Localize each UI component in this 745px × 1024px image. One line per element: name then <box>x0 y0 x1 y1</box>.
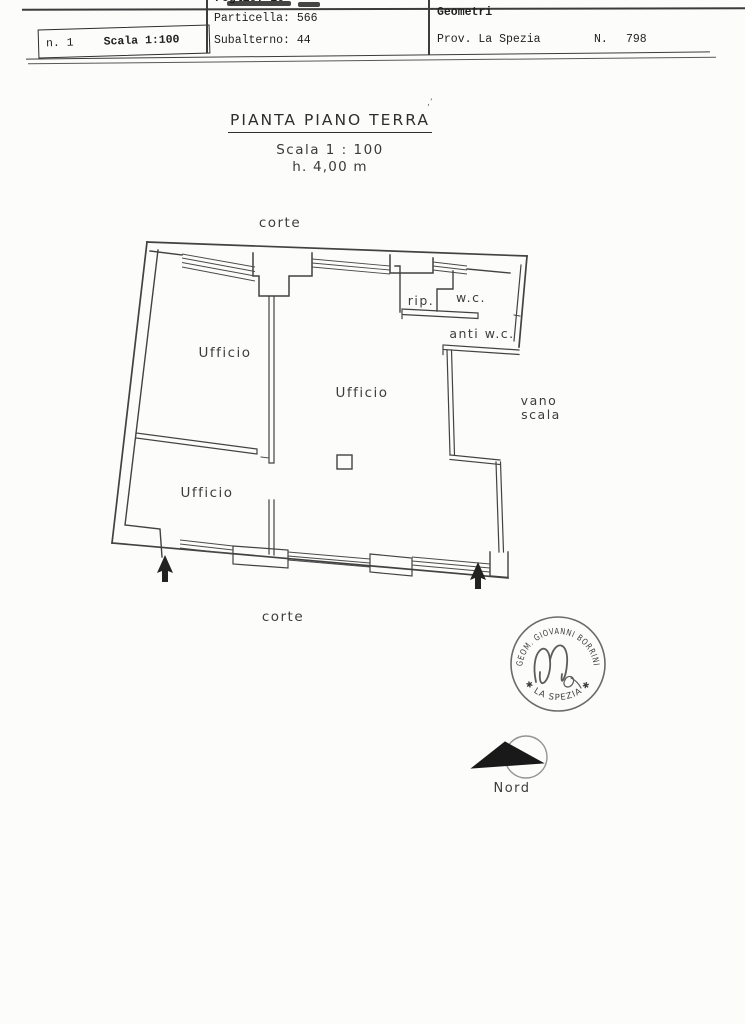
sheet-number: n. 1 <box>46 36 74 50</box>
scale-value: Scala 1:100 <box>103 33 179 48</box>
geometri-field: Geometri <box>437 6 492 19</box>
label-ufficio-bottom: Ufficio <box>180 485 233 501</box>
north-indicator: Nord <box>450 730 580 810</box>
surveyor-stamp: GEOM. GIOVANNI BORRINI ✱ LA SPEZIA ✱ <box>505 608 615 718</box>
label-vano-scala-line2: scala <box>521 407 560 422</box>
north-arrow-icon <box>472 742 543 768</box>
scan-speck: ‚’ <box>427 98 433 108</box>
floor-plan-drawing: corte Ufficio Ufficio Ufficio rip. w.c. … <box>95 205 560 640</box>
title-scale: Scala 1 : 100 <box>215 142 445 158</box>
page-title: PIANTA PIANO TERRA <box>228 111 432 133</box>
scan-smudge <box>227 1 291 6</box>
svg-text:✱ LA SPEZIA ✱: ✱ LA SPEZIA ✱ <box>523 679 594 703</box>
header-divider-right <box>428 0 430 55</box>
stamp-signature <box>534 645 581 688</box>
label-ufficio-center: Ufficio <box>335 385 388 401</box>
stamp-arc-bottom-text: ✱ LA SPEZIA ✱ <box>523 679 594 703</box>
scale-box: n. 1 Scala 1:100 <box>38 24 211 58</box>
registry-n-label: N. <box>594 33 608 46</box>
subalterno-field: Subalterno: 44 <box>214 34 311 47</box>
label-wc: w.c. <box>456 290 486 305</box>
scanned-document-page: n. 1 Scala 1:100 Foglio: 16 Particella: … <box>0 0 745 1024</box>
window-lines <box>180 254 490 572</box>
label-corte-top: corte <box>259 215 301 231</box>
label-rip: rip. <box>408 293 435 308</box>
albo-field: Iscritto all'Albo: <box>437 0 561 4</box>
province-field: Prov. La Spezia <box>437 33 541 46</box>
header-divider-left <box>206 0 208 53</box>
label-anti-wc: anti w.c. <box>449 326 514 341</box>
label-vano-scala-line1: vano <box>521 393 558 408</box>
label-ufficio-left: Ufficio <box>198 345 251 361</box>
page-top-rule <box>22 7 745 11</box>
title-height: h. 4,00 m <box>215 159 445 175</box>
stamp-arc-top-text: GEOM. GIOVANNI BORRINI <box>515 627 601 667</box>
interior-walls <box>136 266 519 576</box>
title-block: PIANTA PIANO TERRA Scala 1 : 100 h. 4,00… <box>215 110 445 175</box>
particella-field: Particella: 566 <box>214 12 318 25</box>
north-label: Nord <box>493 781 530 796</box>
scan-smudge <box>298 2 320 7</box>
svg-text:GEOM. GIOVANNI BORRINI: GEOM. GIOVANNI BORRINI <box>515 627 601 667</box>
registry-number: 798 <box>626 33 647 46</box>
label-corte-bottom: corte <box>262 609 304 625</box>
